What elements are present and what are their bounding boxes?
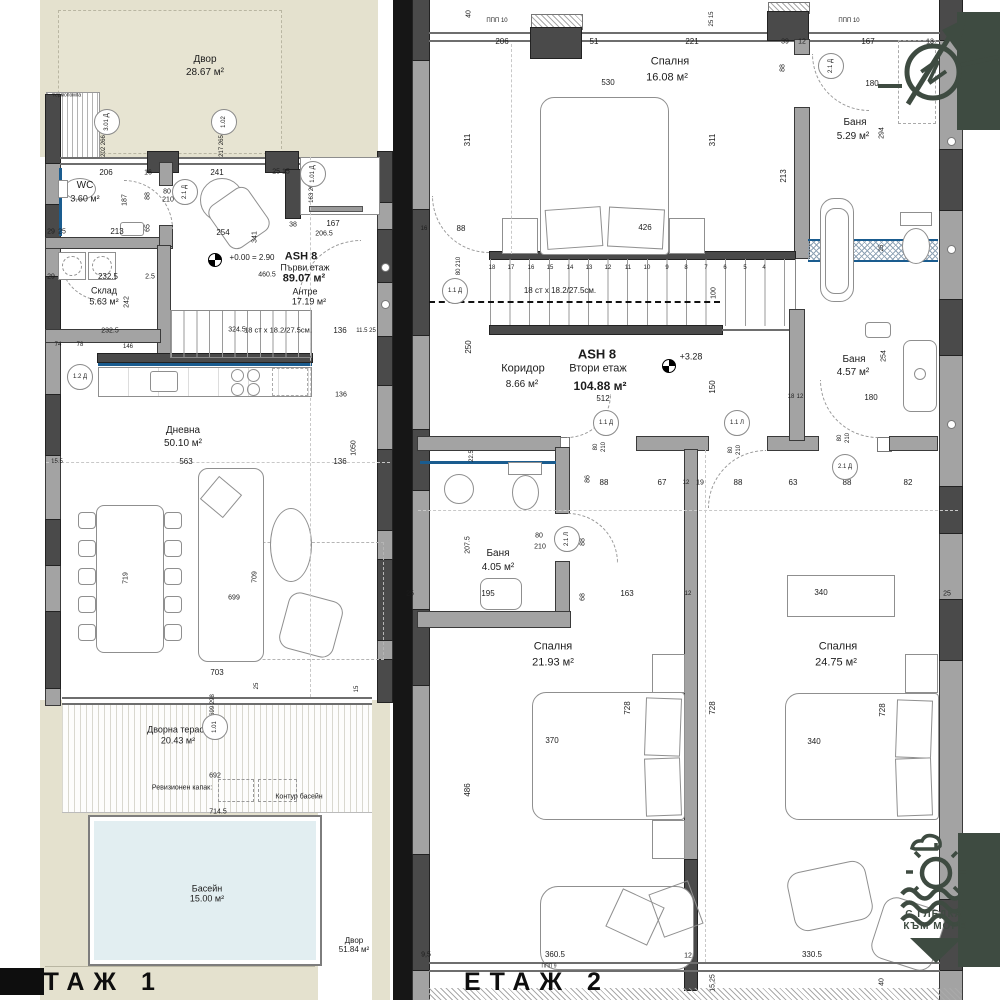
room-area: 5.63 м² <box>89 298 118 307</box>
dim-label: 80 <box>535 533 543 540</box>
dim-label: 29 <box>47 274 55 281</box>
floorplan-canvas: ЕТАЖ 1 <box>0 0 1000 1000</box>
room-tag: 1.01 <box>202 714 228 740</box>
dim-label: 370 <box>545 737 558 745</box>
stair-number: 12 <box>605 265 612 271</box>
dim-label: 563 <box>179 458 192 466</box>
dim-label: 254 <box>216 229 229 237</box>
dim-label: 88 <box>457 225 466 233</box>
note: Контур басейн <box>275 794 322 801</box>
stairs-note: 18 ст x 18.2/27.5см. <box>244 326 312 334</box>
room-area: 104.88 м² <box>574 380 627 392</box>
room-label: Първи етаж <box>280 264 329 273</box>
stair-number: 15 <box>547 265 554 271</box>
dim-label: 206.5 <box>315 231 333 238</box>
dim-label: 88 <box>780 64 787 72</box>
room-label: Дворна тераса <box>147 726 209 735</box>
dim-label: 340 <box>814 589 827 597</box>
dim-label: 88 <box>145 192 152 200</box>
dim-label: 1050 <box>351 440 358 456</box>
room-label: Баня <box>843 118 866 128</box>
room-label: Двор <box>193 55 216 65</box>
dim-label: 12 <box>684 953 692 960</box>
room-label: Баня <box>842 355 865 365</box>
dim-label: 146 <box>123 344 133 350</box>
dim-label: 25 <box>943 591 951 598</box>
dim-label: 210 <box>736 445 742 455</box>
dim-label: 703 <box>210 669 223 677</box>
dim-label: 12 <box>797 394 804 400</box>
unit-label: ASH 8 <box>578 348 616 361</box>
dim-label: 88 <box>580 538 587 546</box>
room-tag: 2.1 Л <box>554 526 580 552</box>
dim-label: 16 <box>144 170 152 177</box>
room-area: 5.29 м² <box>837 132 869 142</box>
dim-label: 360.5 <box>545 951 565 959</box>
room-tag: 2.1 Д <box>172 179 198 205</box>
dim-label: 12 <box>798 39 806 46</box>
dim-label: 15 <box>354 686 360 693</box>
dim-label: 25 <box>254 683 260 690</box>
dim-label: 80 <box>163 189 171 196</box>
room-area: 89.07 м² <box>283 274 325 285</box>
room-tag: 3.01 Д <box>94 109 120 135</box>
dim-label: 311 <box>464 134 472 147</box>
stair-number: 5 <box>743 265 746 271</box>
dim-label: 221 <box>685 38 698 46</box>
dim-label: 40 <box>879 978 886 986</box>
dim-label: 232.5 <box>101 328 119 335</box>
note: ППП 9 <box>542 965 557 970</box>
room-label: Дневна <box>166 426 200 436</box>
stair-number: 7 <box>704 265 707 271</box>
note: термопомпа <box>53 94 81 99</box>
dim-label: 206 <box>495 38 508 46</box>
room-tag: 2.1 Д <box>818 53 844 79</box>
dim-label: 728 <box>709 701 717 714</box>
stair-number: 10 <box>644 265 651 271</box>
dim-label: 16 <box>421 226 428 232</box>
dim-label: 728 <box>879 703 887 716</box>
note: Ревизионен капак: <box>152 785 212 792</box>
dim-label: 15.5 <box>51 459 63 465</box>
annotation-layer: Двор28.67 м²WC3.60 м²Склад5.63 м²ASH 8Пъ… <box>0 0 1000 1000</box>
dim-label: 74 <box>55 342 62 348</box>
note: ППП 10 <box>486 18 507 24</box>
stair-number: 11 <box>625 265 631 271</box>
dim-label: 692 <box>209 773 221 780</box>
dim-label: 80 210 <box>456 257 462 275</box>
stair-number: 18 <box>489 265 496 271</box>
dim-label: 40 <box>466 10 473 18</box>
dim-label: 210 <box>845 433 851 443</box>
dim-label: 311 <box>709 134 717 147</box>
room-label: Баня <box>486 549 509 559</box>
room-label: Втори етаж <box>569 364 626 375</box>
dim-label: 25 <box>58 229 66 236</box>
dim-label: 88 <box>843 479 852 487</box>
dim-label: 294 <box>879 127 886 139</box>
room-tag: 1.01 Д <box>300 161 326 187</box>
dim-label: 39 <box>781 39 789 46</box>
dim-label: 250 <box>465 340 473 353</box>
dim-label: 100 <box>711 287 718 299</box>
dim-label: 88 <box>600 479 609 487</box>
dim-label: 25 <box>879 245 885 252</box>
dim-label: 180 <box>864 394 877 402</box>
dim-label: 150 <box>709 380 717 393</box>
dim-label: 163 <box>620 590 633 598</box>
stair-number: 17 <box>508 265 515 271</box>
dim-label: 80 <box>593 444 599 451</box>
dim-label: 167 <box>861 38 874 46</box>
dim-label: 12 <box>685 591 692 597</box>
dim-label: 12 <box>683 480 690 486</box>
stairs-note: 18 ст x 18.2/27.5см. <box>524 287 596 295</box>
note: ППП 10 <box>838 18 859 24</box>
dim-label: 51 <box>590 38 599 46</box>
dim-label: 217 265 <box>219 135 225 157</box>
room-tag: 1.1 Д <box>593 410 619 436</box>
dim-label: 136 <box>335 392 347 399</box>
room-label: Двор <box>345 937 363 945</box>
dim-label: 80 <box>728 447 734 454</box>
dim-label: 714.5 <box>209 809 227 816</box>
stair-number: 9 <box>665 265 668 271</box>
dim-label: 65 <box>145 224 152 232</box>
room-tag: 1.1 Д <box>442 278 468 304</box>
dim-label: 340 <box>807 738 820 746</box>
dim-label: 67 <box>658 479 667 487</box>
dim-label: 180 <box>865 80 878 88</box>
room-area: 20.43 м² <box>161 737 195 746</box>
room-label: Склад <box>91 287 117 296</box>
dim-label: 213 <box>110 228 123 236</box>
room-area: 8.66 м² <box>506 380 538 390</box>
dim-label: 29 <box>47 229 55 236</box>
dim-label: 18 <box>788 394 795 400</box>
dim-label: 486 <box>464 783 472 796</box>
room-tag: 1.2 Д <box>67 364 93 390</box>
dim-label: 88 <box>734 479 743 487</box>
room-label: Басейн <box>192 885 222 894</box>
room-area: 51.84 м² <box>339 946 369 954</box>
dim-label: 241 <box>210 169 223 177</box>
dim-label: 207.5 <box>465 536 472 554</box>
dim-label: 530 <box>601 79 614 87</box>
dim-label: 25 15 <box>709 11 715 26</box>
room-area: 24.75 м² <box>815 658 857 669</box>
stair-number: 4 <box>762 265 765 271</box>
room-tag: 1.02 <box>211 109 237 135</box>
dim-label: 728 <box>624 701 632 714</box>
room-area: 3.60 м² <box>70 195 99 204</box>
room-area: 50.10 м² <box>164 439 202 449</box>
dim-label: 2.5 <box>145 274 155 281</box>
dim-label: 136 <box>333 458 346 466</box>
unit-label: ASH 8 <box>285 252 317 263</box>
room-tag: 2.1 Д <box>832 454 858 480</box>
dim-label: 699 298 <box>210 694 216 716</box>
dim-label: 709 <box>252 571 259 583</box>
room-area: 4.05 м² <box>482 563 514 573</box>
dim-label: 136 <box>333 327 346 335</box>
dim-label: 232.5 <box>98 273 118 281</box>
dim-label: 68 <box>580 593 587 601</box>
room-label: Коридор <box>501 364 544 375</box>
room-label: WC <box>77 181 94 191</box>
dim-label: 202 266 <box>101 135 107 157</box>
stair-number: 16 <box>528 265 535 271</box>
room-label: Спалня <box>651 57 689 68</box>
dim-label: 22.5 <box>469 450 475 462</box>
room-label: Спалня <box>819 642 857 653</box>
dim-label: 699 <box>228 595 240 602</box>
dim-label: 213 <box>780 169 788 182</box>
dim-label: 324.5 <box>228 327 246 334</box>
dim-label: 82 <box>904 479 913 487</box>
dim-label: 512 <box>596 395 609 403</box>
level-note: +3.28 <box>680 353 703 362</box>
dim-label: 210 <box>534 544 546 551</box>
dim-label: 341 <box>252 231 259 243</box>
dim-label: 11.5 25 <box>356 328 376 334</box>
dim-label: 187 <box>122 194 129 206</box>
dim-label: 330.5 <box>802 951 822 959</box>
dim-label: 25 <box>406 591 414 598</box>
stair-number: 14 <box>567 265 574 271</box>
room-area: 4.57 м² <box>837 368 869 378</box>
dim-label: 210 <box>162 197 174 204</box>
level-note: +0.00 = 2.90 <box>230 254 275 262</box>
dim-label: 460.5 <box>258 272 276 279</box>
stair-number: 13 <box>586 265 593 271</box>
dim-label: 167 <box>326 220 339 228</box>
room-area: 16.08 м² <box>646 73 688 84</box>
dim-label: 25 15 <box>272 169 290 176</box>
dim-label: 242 <box>124 296 131 308</box>
room-area: 15.00 м² <box>190 895 224 904</box>
dim-label: 426 <box>638 224 651 232</box>
dim-label: 9,5 <box>421 952 431 959</box>
dim-label: 80 <box>837 435 843 442</box>
dim-label: 254 <box>881 350 888 362</box>
dim-label: 19 <box>696 480 704 487</box>
room-tag: 1.1 Л <box>724 410 750 436</box>
stair-number: 8 <box>684 265 687 271</box>
dim-label: 38 <box>289 222 297 229</box>
dim-label: 78 <box>77 342 84 348</box>
room-area: 21.93 м² <box>532 658 574 669</box>
dim-label: 719 <box>123 572 130 584</box>
dim-label: 13 <box>926 39 934 46</box>
dim-label: 195 <box>481 590 494 598</box>
dim-label: 206 <box>99 169 112 177</box>
dim-label: 15,25 <box>710 974 717 992</box>
dim-label: 210 <box>601 442 607 452</box>
dim-label: 86 <box>585 475 592 483</box>
room-area: 28.67 м² <box>186 68 224 78</box>
stair-number: 6 <box>723 265 726 271</box>
room-label: Спалня <box>534 642 572 653</box>
dim-label: 63 <box>789 479 798 487</box>
room-area: 17.19 м² <box>292 298 326 307</box>
room-label: Антре <box>292 288 317 297</box>
